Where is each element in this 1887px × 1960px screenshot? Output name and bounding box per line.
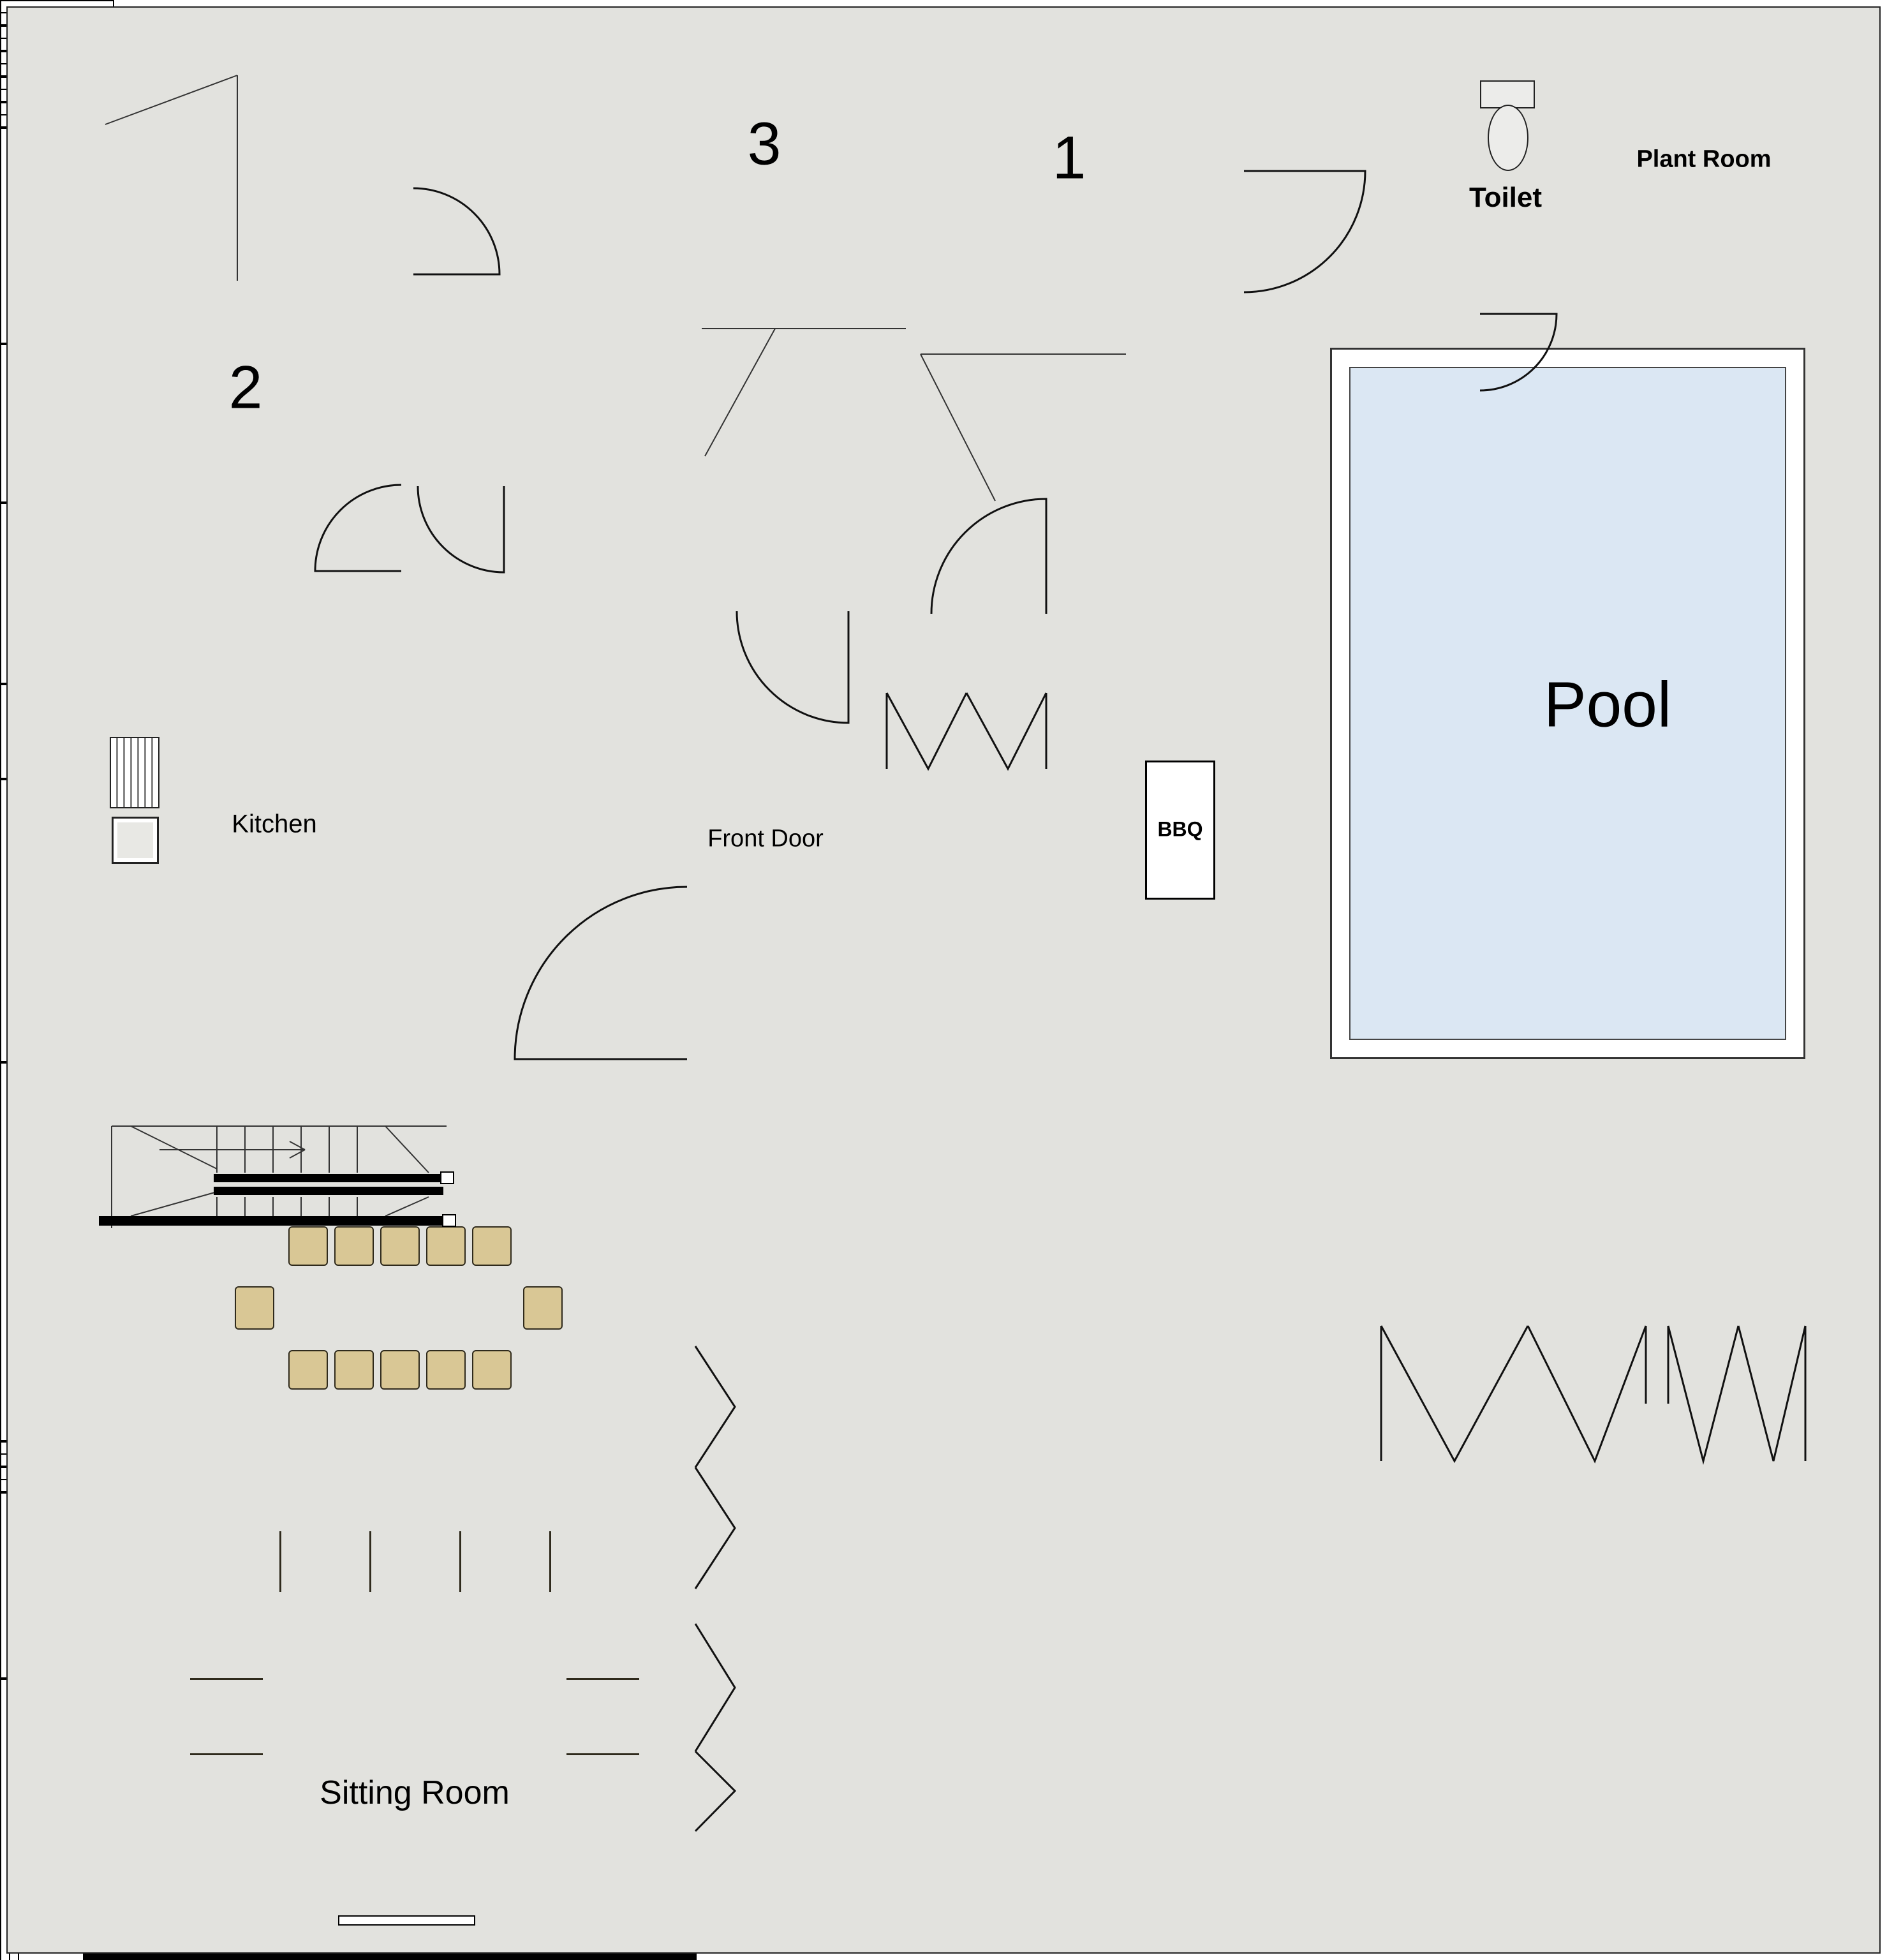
kitchen-appliance bbox=[110, 737, 159, 808]
chair-icon bbox=[235, 1286, 274, 1330]
chair-icon bbox=[426, 1350, 466, 1390]
chair-icon bbox=[334, 1350, 374, 1390]
chair-icon bbox=[288, 1350, 328, 1390]
toilet-label: Toilet bbox=[1469, 182, 1542, 214]
stair-rail bbox=[214, 1174, 443, 1182]
chair-icon bbox=[472, 1350, 512, 1390]
sofa-seams bbox=[190, 1605, 263, 1828]
toilet-icon bbox=[1488, 105, 1528, 171]
bedroom2-label: 2 bbox=[229, 353, 263, 423]
stair-newel bbox=[440, 1171, 454, 1184]
bedroom3-label: 3 bbox=[748, 110, 781, 179]
sofa-seams bbox=[191, 1531, 638, 1592]
bedroom1-label: 1 bbox=[1053, 124, 1086, 193]
plant-room-label: Plant Room bbox=[1636, 146, 1771, 174]
kitchen-sink-unit bbox=[112, 817, 159, 864]
chair-icon bbox=[380, 1350, 420, 1390]
chair-icon bbox=[334, 1226, 374, 1266]
stair-rail bbox=[99, 1216, 447, 1226]
pool-label: Pool bbox=[1544, 669, 1671, 742]
floor-plan: TV bbox=[0, 0, 1887, 1960]
chair-icon bbox=[288, 1226, 328, 1266]
sofa-seams bbox=[566, 1605, 639, 1828]
bbq-label: BBQ bbox=[1157, 818, 1202, 842]
chair-icon bbox=[426, 1226, 466, 1266]
chair-icon bbox=[523, 1286, 563, 1330]
stair-newel bbox=[442, 1214, 456, 1227]
sitting-room-label: Sitting Room bbox=[320, 1774, 510, 1812]
kitchen-label: Kitchen bbox=[232, 810, 316, 839]
front-door-label: Front Door bbox=[707, 826, 824, 853]
chair-icon bbox=[472, 1226, 512, 1266]
stair-rail bbox=[214, 1187, 443, 1195]
hearth bbox=[338, 1915, 475, 1926]
chair-icon bbox=[380, 1226, 420, 1266]
